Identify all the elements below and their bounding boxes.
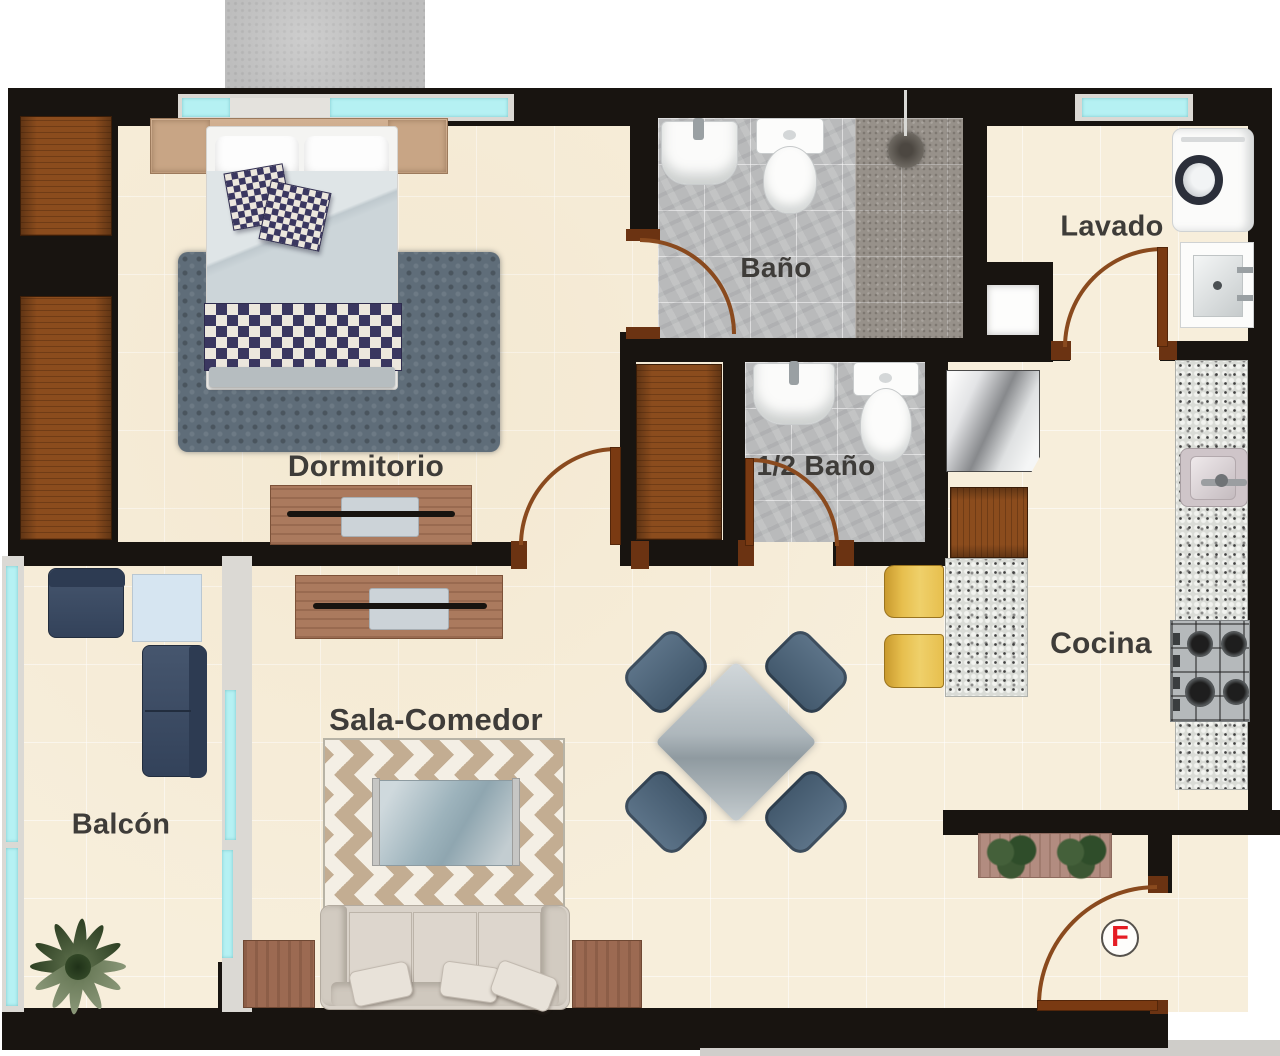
wall-bottom — [2, 1008, 1168, 1050]
wall-bath-left — [630, 88, 658, 240]
burner-icon-1 — [1187, 631, 1213, 657]
laundry-sink — [1180, 242, 1254, 328]
bedroom-window-sill — [230, 98, 330, 117]
lavado-window-glass — [1082, 98, 1188, 117]
shower-head-icon — [888, 132, 924, 168]
coffee-table-edge-right — [512, 778, 520, 866]
kitchen-sink — [1180, 448, 1248, 507]
kitchen-faucet-handle-icon — [1215, 474, 1228, 487]
room-label-dormitorio: Dormitorio — [288, 450, 444, 484]
wall-bedroom-bottom — [8, 542, 513, 566]
planter-plant-icon-right — [1052, 832, 1110, 880]
laundry-faucet-icon-2 — [1237, 295, 1253, 301]
side-table-left — [243, 940, 315, 1008]
balcony-divider-glass-lower — [222, 850, 233, 958]
wall-closet-left — [620, 345, 636, 566]
bedroom-window-glass-left — [182, 98, 230, 117]
bar-stool-1 — [884, 565, 944, 618]
halfbath-flush-button-icon — [879, 373, 892, 383]
balcony-side-table — [132, 574, 202, 642]
coffee-table-edge-left — [372, 778, 380, 866]
entrance-marker-letter: F — [1111, 921, 1129, 954]
room-label-lavado: Lavado — [1060, 211, 1163, 244]
lavado-door-leaf — [1157, 247, 1168, 347]
side-table-right — [572, 940, 642, 1008]
balcony-railing-glass-upper — [6, 566, 18, 842]
palm-center-icon — [65, 954, 91, 980]
gas-stove — [1170, 620, 1250, 722]
kitchen-counter-wood — [950, 487, 1028, 558]
console-tv-screen — [369, 588, 449, 630]
room-label-sala-comedor: Sala-Comedor — [329, 702, 543, 738]
burner-icon-2 — [1221, 631, 1247, 657]
balcony-armchair — [48, 568, 124, 638]
living-console — [295, 575, 503, 639]
bedroom-dresser — [270, 485, 472, 545]
room-label-bano: Baño — [740, 252, 811, 284]
exterior-edge-strip — [700, 1048, 1170, 1056]
wardrobe-upper — [20, 116, 112, 236]
halfbath-sink — [753, 363, 835, 425]
accent-pillow-2 — [258, 180, 331, 252]
washer-control-panel-icon — [1181, 137, 1245, 142]
kitchen-counter-right — [1175, 360, 1248, 790]
bed-footboard — [209, 367, 395, 387]
shower-arm-icon — [904, 90, 907, 136]
room-label-cocina: Cocina — [1050, 627, 1152, 661]
palm-plant — [25, 916, 131, 1016]
laundry-faucet-icon-1 — [1237, 267, 1253, 273]
wardrobe-lower — [20, 296, 112, 540]
balcony-loveseat-seam — [145, 710, 191, 712]
coffee-table-glass — [378, 780, 516, 866]
balcony-armchair-back — [49, 569, 125, 587]
room-label-balcon: Balcón — [72, 809, 171, 842]
burner-icon-4 — [1223, 679, 1249, 705]
refrigerator — [946, 370, 1040, 472]
planter-plant-icon-left — [982, 832, 1040, 880]
washing-machine — [1172, 128, 1254, 232]
nightstand-left — [152, 120, 210, 172]
entrance-door-leaf — [1037, 1000, 1158, 1011]
burner-icon-3 — [1185, 677, 1215, 707]
exterior-walk-strip — [1168, 1040, 1280, 1056]
bathroom-sink-faucet-icon — [693, 118, 704, 140]
exterior-slab — [225, 0, 425, 94]
stove-knobs-icon — [1173, 631, 1180, 711]
sofa — [320, 905, 570, 1010]
halfbath-faucet-icon — [789, 361, 799, 385]
laundry-drain-icon — [1213, 281, 1222, 290]
bar-stool-2 — [884, 634, 944, 688]
storage-closet — [636, 364, 722, 540]
halfbath-door-leaf — [745, 458, 754, 546]
console-tv-bar — [313, 603, 487, 609]
bathroom-sink — [661, 121, 738, 185]
kitchen-sink-basin — [1190, 456, 1236, 500]
floor-plan: Dormitorio Baño Lavado 1/2 Baño — [0, 0, 1280, 1056]
double-bed — [206, 126, 398, 390]
wall-halfbath-left — [723, 362, 745, 546]
wall-halfbath-right — [925, 362, 948, 566]
dresser-tv-screen — [341, 497, 419, 537]
bedroom-door-frame-left — [511, 541, 527, 569]
balcony-loveseat-back — [189, 646, 207, 778]
bedroom-window-glass-right — [330, 98, 508, 117]
dresser-tv-bar — [287, 511, 455, 517]
bed-checker-band — [204, 303, 402, 371]
bedroom-door-leaf — [610, 447, 621, 545]
wall-niche — [987, 285, 1039, 335]
entrance-marker-circle: F — [1101, 919, 1139, 957]
bathroom-toilet-bowl — [763, 146, 817, 214]
toilet-flush-button-icon — [783, 130, 796, 140]
washer-door-icon — [1175, 155, 1223, 205]
balcony-loveseat — [142, 645, 206, 777]
bedroom-door-frame-right — [631, 541, 649, 569]
balcony-railing-glass-lower — [6, 848, 18, 1006]
balcony-divider-glass-upper — [225, 690, 236, 840]
breakfast-bar-counter — [945, 558, 1028, 697]
